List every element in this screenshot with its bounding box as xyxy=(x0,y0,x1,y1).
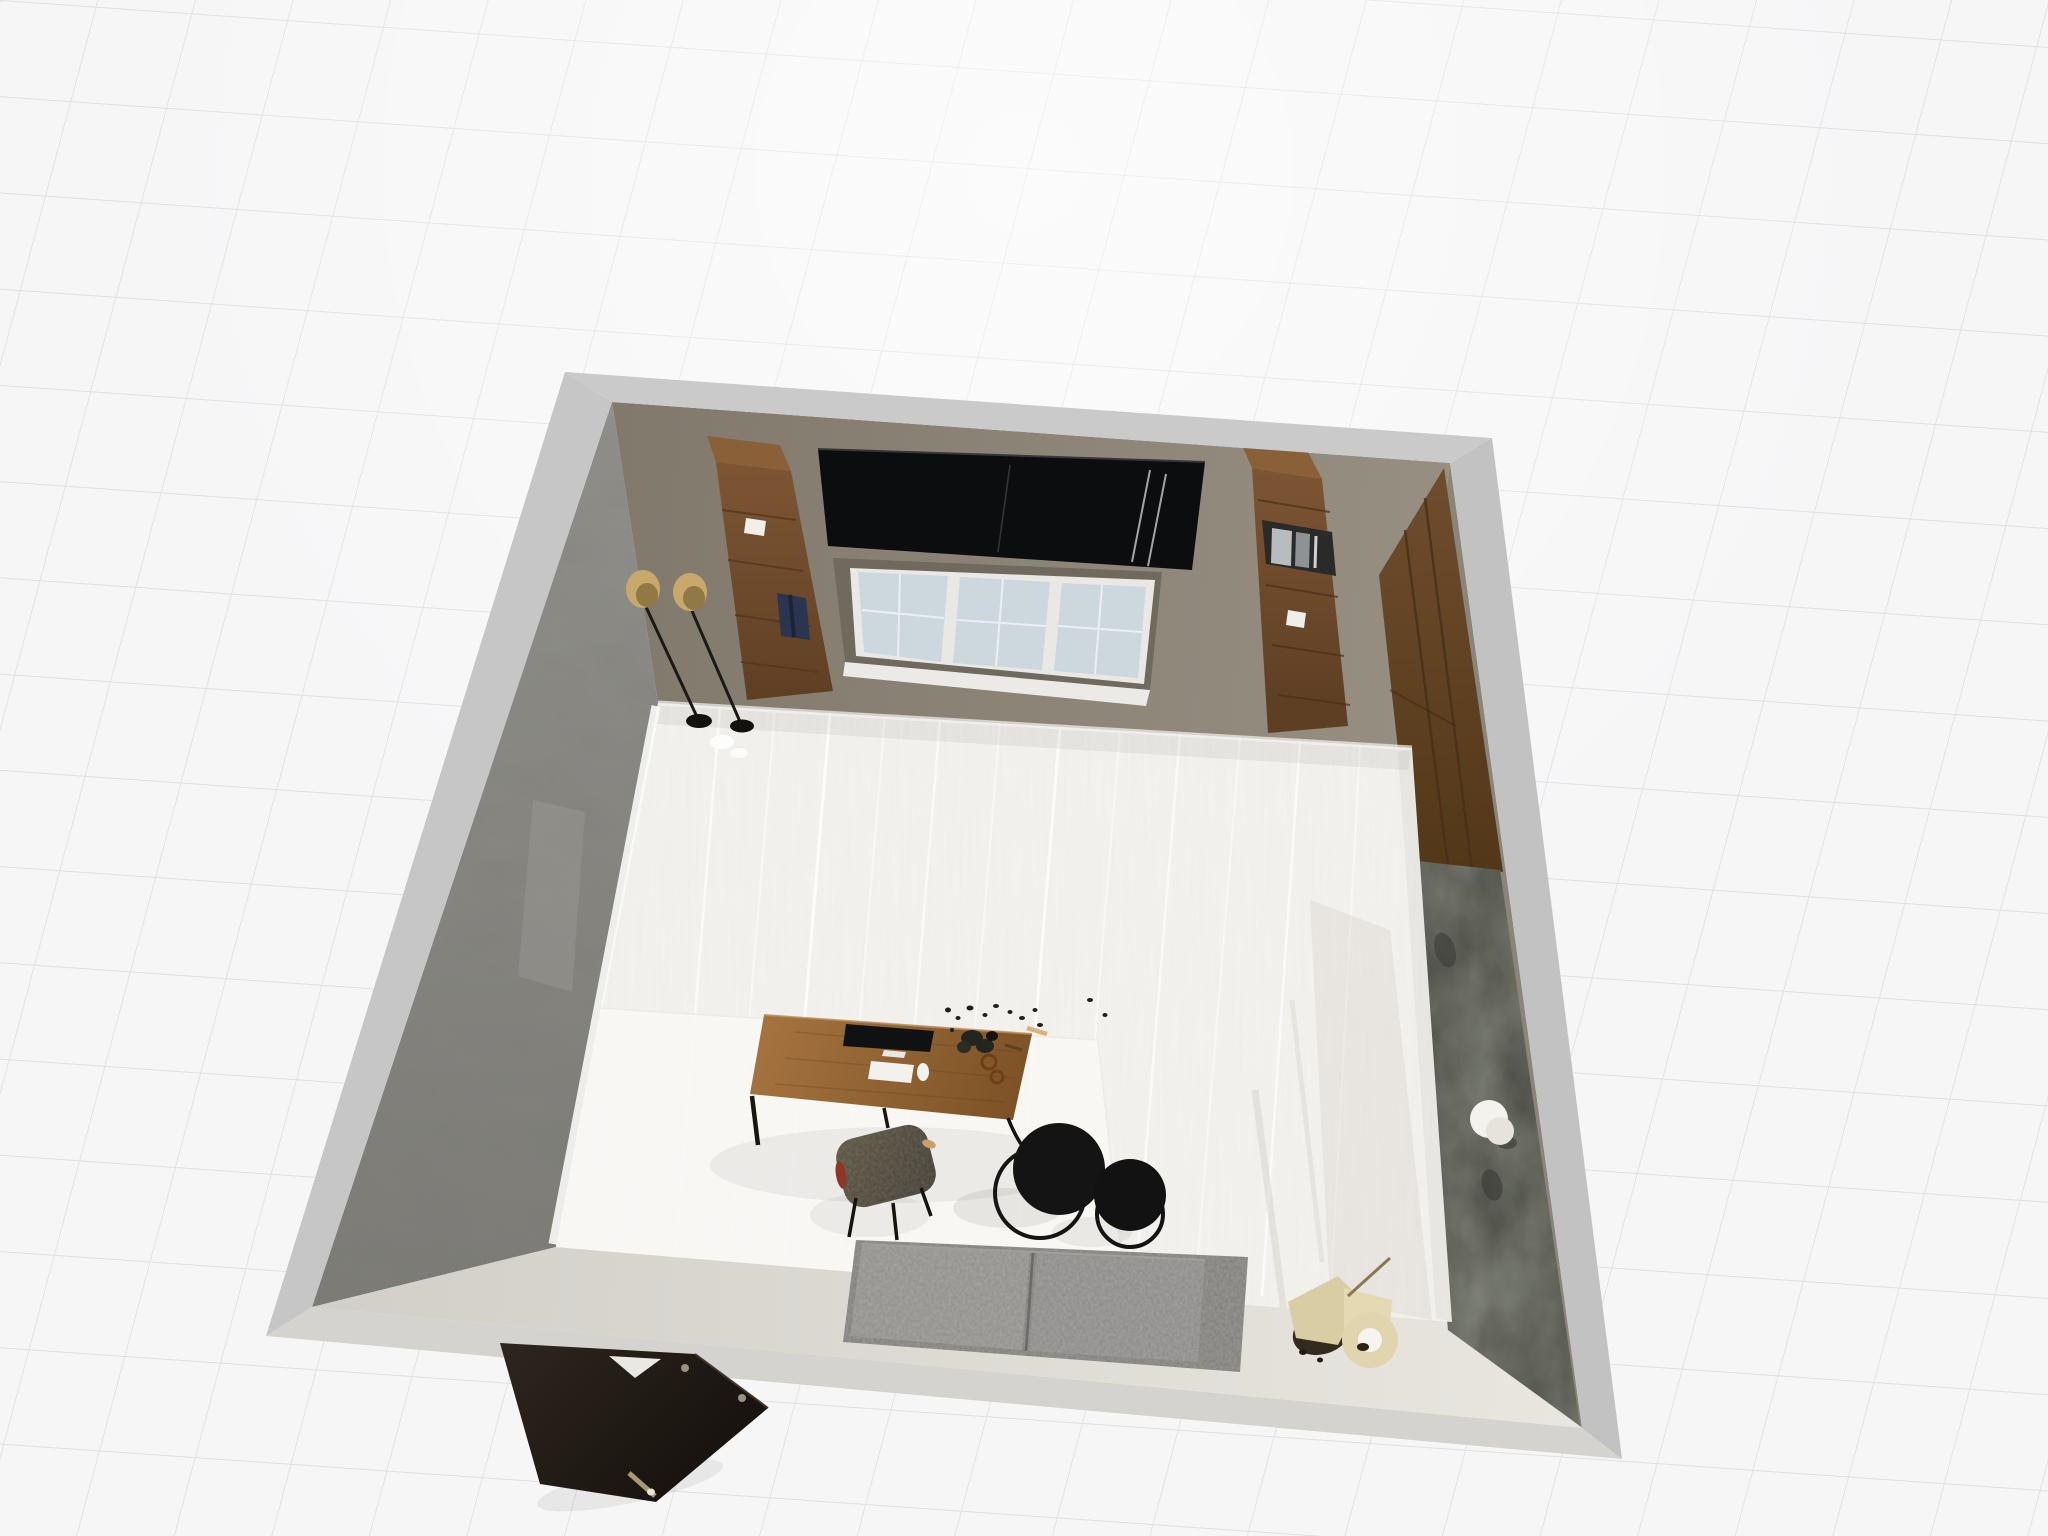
lamp-base xyxy=(730,720,754,733)
plant-leaves xyxy=(986,1031,998,1041)
table-top xyxy=(1094,1159,1166,1231)
planner-3d-viewport[interactable] xyxy=(0,0,2048,1536)
shelf-item-metal xyxy=(1295,532,1310,568)
shelf-white-box xyxy=(744,518,766,536)
paper-on-floor xyxy=(710,735,734,749)
sconce-face xyxy=(1486,1117,1514,1145)
lamp-base xyxy=(686,714,712,728)
lamp-shade-inner xyxy=(683,586,705,610)
shelf-item-metal xyxy=(1271,528,1292,566)
shelf-white-box xyxy=(1286,610,1306,628)
scene-canvas[interactable] xyxy=(0,0,2048,1536)
chair-foot xyxy=(1317,1358,1323,1363)
door-handle-cap xyxy=(647,1489,655,1496)
table-top xyxy=(1013,1123,1105,1215)
chair-foot xyxy=(1299,1349,1307,1355)
ring-dark-dot xyxy=(1357,1343,1369,1351)
shelf-item-metal xyxy=(1315,536,1316,568)
door-hinge-dot xyxy=(738,1394,746,1402)
door-hinge-dot xyxy=(681,1364,689,1372)
paper-on-floor xyxy=(730,748,748,758)
ring-side-table[interactable] xyxy=(1342,1312,1398,1368)
lamp-shade-inner xyxy=(636,583,658,607)
plant-leaves xyxy=(957,1041,971,1053)
plant-leaves xyxy=(976,1039,994,1053)
mouse[interactable] xyxy=(917,1063,929,1081)
